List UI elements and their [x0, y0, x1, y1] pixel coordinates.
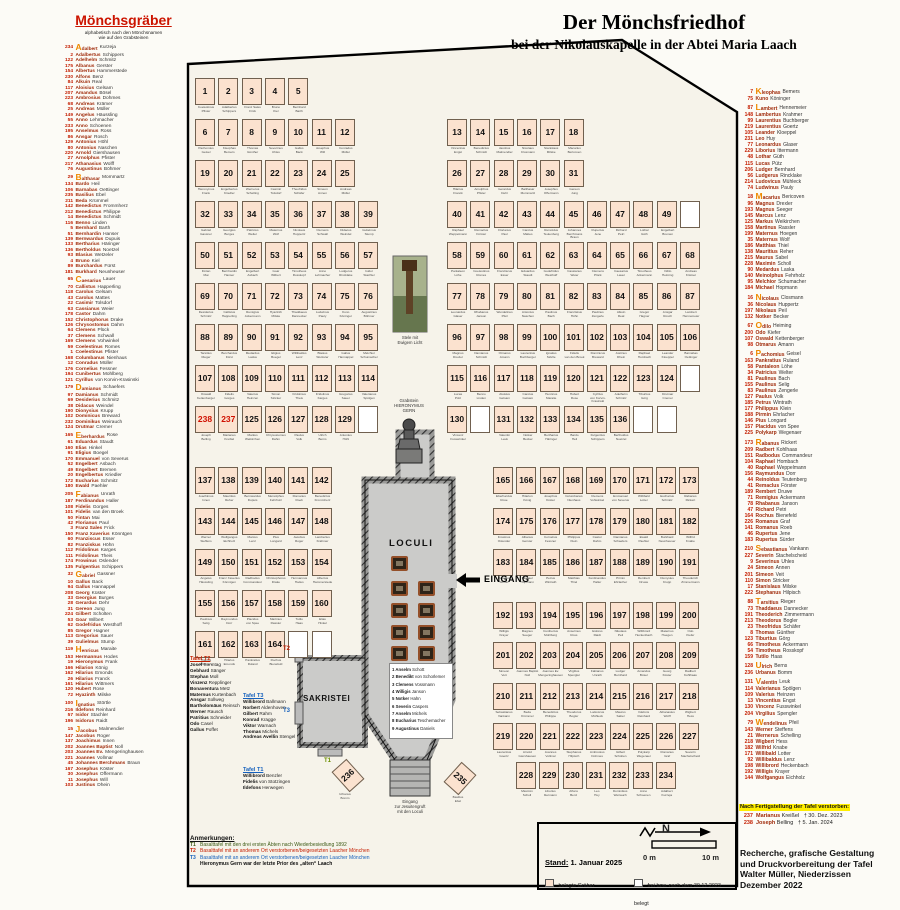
grave-number: 196	[60, 719, 73, 724]
plot-monk-name: VincenzFusswinkel	[445, 434, 471, 441]
plot-monk-name: GeorgiusBurges	[216, 229, 242, 236]
plot-number: 84	[611, 284, 629, 309]
plot-monk-name: MagnusSeeger	[514, 630, 540, 637]
sakristei-label: SAKRISTEI	[303, 694, 350, 703]
post-completion-entry: 237Marianus Kreißel † 30. Dez. 2023	[739, 813, 899, 820]
plot-monk-name: JosephusWill	[310, 147, 336, 154]
grave-plot-207: 207AmandusBösel	[633, 642, 653, 669]
plot-monk-name: JosephBelling	[193, 434, 219, 441]
plot-monk-name: Franz XaveriusKönntgen	[216, 577, 242, 584]
grave-plot-133: 133BerthariusHäringer	[540, 406, 560, 433]
plot-monk-name: MauritiusReher	[216, 495, 242, 502]
grave-number: 65	[60, 277, 73, 284]
plot-monk-name: CarolusMattes	[515, 229, 541, 236]
loculus-3	[418, 581, 435, 596]
grave-plot-97: 97DamianusSchmidt	[470, 324, 490, 351]
grave-plot-174: 174FrowinusOslender	[493, 508, 513, 535]
plot-number: 110	[266, 366, 284, 391]
plot-number: 44	[541, 202, 559, 227]
plot-number: 116	[471, 366, 489, 391]
plot-monk-name: Emmanuelvon Severus	[608, 495, 634, 502]
plot-number: 206	[611, 643, 629, 668]
monk-surname: Neunheuser	[99, 270, 125, 275]
grave-plot-187: 187FerdinandusHaller	[586, 549, 606, 576]
plot-monk-name: RomanusGraf	[654, 751, 680, 758]
grave-plot-222: 222StephanusHilpisch	[563, 723, 583, 750]
loculus-4	[391, 603, 408, 618]
plot-number: 18	[565, 120, 583, 145]
grave-plot-26: 26HilariusFranck	[447, 160, 467, 187]
plot-monk-name: LambertHennemeier	[678, 311, 704, 318]
plot-monk-name: GregorHagner	[631, 311, 657, 318]
grave-plot-168: 168ColumbanusNienhaus	[563, 467, 583, 494]
plot-number: 162	[219, 632, 237, 657]
grave-plot-28: 28GerardusDehr	[494, 160, 514, 187]
plot-monk-name: Joannes BaptistNoll	[514, 670, 540, 677]
plot-number: 159	[289, 591, 307, 616]
plot-monk-name: Joannes Ev.Mengeringhausen	[538, 670, 564, 677]
plot-monk-name: LeanderKloeppel	[655, 352, 681, 359]
plot-monk-name: WernerSteffens	[193, 536, 219, 543]
page-title-block: Der Mönchsfriedhof bei der Nikolauskapel…	[415, 10, 893, 53]
plot-number: 47	[611, 202, 629, 227]
grave-plot-129: 129AntoniusHöhl	[335, 406, 355, 433]
plot-number: 181	[657, 509, 675, 534]
monk-surname: Kloeppel	[777, 130, 796, 136]
plot-number: 202	[517, 643, 535, 668]
plot-number: 195	[564, 603, 582, 628]
grave-plot-217: 217AthanasiusWolff	[656, 683, 676, 710]
plot-monk-name: FridolinusKarges	[310, 393, 336, 400]
plot-monk-name: AntoniusHöhl	[333, 434, 359, 441]
plot-number: 32	[196, 202, 214, 227]
plot-monk-name: EliasHinkel	[310, 618, 336, 625]
grave-number: 222	[739, 590, 753, 596]
plot-number: 111	[289, 366, 307, 391]
plot-number: 173	[680, 468, 698, 493]
plot-number: 218	[680, 684, 698, 709]
plot-monk-name: AugustinusBöhmer	[356, 311, 382, 318]
grave-plot-85: 85GregorHagner	[633, 283, 653, 310]
grave-plot-124: 124DrutmarCremer	[657, 365, 677, 392]
monk-surname: Schaefers	[103, 385, 125, 392]
grave-index-entry: 75KunoKöninger	[739, 96, 899, 102]
plot-monk-name: TutiloHaas	[286, 618, 312, 625]
grave-number: 159	[739, 654, 753, 660]
plot-number: 124	[658, 366, 676, 391]
plot-number: 154	[313, 550, 331, 575]
plot-number: 109	[243, 366, 261, 391]
plot-number: 15	[495, 120, 513, 145]
grave-plot-237: 237MarianusKreißel	[218, 406, 238, 433]
plot-monk-name: WilligisKrayer	[491, 630, 517, 637]
stele-caption: Stele mit Ewigem Licht	[388, 336, 432, 346]
grave-plot-69: 69DesideriusSchmitz	[195, 283, 215, 310]
grave-number: 128	[739, 663, 753, 670]
grave-index-entry: 159TutiloHaas	[739, 654, 899, 660]
plot-number: 78	[471, 284, 489, 309]
plot-monk-name: TimotheusRosskopf	[286, 270, 312, 277]
grave-plot-51: 51BernhardinHanser	[218, 242, 238, 269]
grave-number: 210	[739, 546, 753, 553]
plot-monk-name: FerdinandusHaller	[584, 577, 610, 584]
grave-plot-83: 83PaulinusZengerle	[587, 283, 607, 310]
plot-monk-name: MartinusRassler	[263, 618, 289, 625]
plot-monk-name: RadbertKohlhaas	[677, 670, 703, 677]
plot-number: 10	[289, 120, 307, 145]
plot-number: 35	[266, 202, 284, 227]
plot-monk-name: DidacusWeindel	[333, 229, 359, 236]
monk-surname: Wegenaer	[779, 430, 802, 436]
plot-number: 81	[541, 284, 559, 309]
grave-number: 98	[739, 342, 753, 348]
plot-monk-name: GerardusDehr	[492, 188, 518, 195]
plot-monk-name: GilbertScholten	[608, 751, 634, 758]
plot-monk-name: FintanMai	[193, 270, 219, 277]
grave-plot-101: 101Fidelisvan den Broek	[564, 324, 584, 351]
grave-number: 103	[60, 783, 73, 788]
grave-number: 225	[739, 430, 753, 436]
grave-index-entry: 225PolykarpWegenaer	[739, 430, 899, 436]
plot-number: 13	[448, 120, 466, 145]
plot-number: 143	[196, 509, 214, 534]
plot-monk-name: CaesariusLauer	[608, 270, 634, 277]
plot-number: 91	[266, 325, 284, 350]
plot-number: 25	[336, 161, 354, 186]
grave-plot-230: 230AlfonsBenz	[563, 762, 583, 789]
plot-number: 16	[518, 120, 536, 145]
plot-monk-name: LaurentiusGoertz	[491, 751, 517, 758]
plot-monk-name: DominikusWeirauch	[607, 790, 633, 797]
grave-plot-179: 179DamianusSchaefers	[610, 508, 630, 535]
grave-plot-159: 159TutiloHaas	[288, 590, 308, 617]
plot-monk-name: SeverinusUhles	[263, 147, 289, 154]
grave-plot-100: 100IgnatiusStörtle	[540, 324, 560, 351]
plot-monk-name: PolykarpWegenaer	[631, 751, 657, 758]
eingang-arrow-icon	[456, 573, 480, 587]
grave-plot-57: 57IsidorStachler	[358, 242, 378, 269]
plot-monk-name: ThomasGünther	[240, 147, 266, 154]
plot-number: 11	[313, 120, 331, 145]
plot-number: 40	[448, 202, 466, 227]
grave-number: 180	[60, 484, 73, 489]
grave-plot-56: 56LudgerusRincklake	[335, 242, 355, 269]
plot-monk-name: TimotheusAckermann	[631, 270, 657, 277]
plot-monk-name: WigbertHess	[677, 711, 703, 718]
plot-number: 26	[448, 161, 466, 186]
loculus-5	[418, 603, 435, 618]
grave-plot-214: 214LudovicusMühleck	[586, 683, 606, 710]
grave-number: 76	[60, 167, 73, 172]
plot-monk-name: GereonJung	[562, 188, 588, 195]
plot-monk-name: PantaleonLöhe	[445, 270, 471, 277]
plot-monk-name: PaulusVolk	[286, 434, 312, 441]
grave-plot-84: 84AlkuinReal	[610, 283, 630, 310]
grave-plot-79: 79WendelinusPfeil	[494, 283, 514, 310]
plot-monk-name: EngelbertAsbach	[240, 270, 266, 277]
grave-number: 119	[60, 647, 73, 654]
plot-monk-name: BerthariusHäringer	[538, 434, 564, 441]
monk-surname: Dhein	[97, 783, 110, 788]
plot-monk-name: AlbertusHammerstede	[310, 577, 336, 584]
grave-index-entry: 184MichaelHopmann	[739, 285, 899, 291]
plot-number: 183	[494, 550, 512, 575]
plot-monk-name: MaternusWolf	[263, 229, 289, 236]
plot-monk-name: Placidusvon Spee	[240, 618, 266, 625]
index-entries-k-w: 7KleophasBemers75KunoKöninger87LambertHe…	[739, 89, 899, 781]
grave-plot-163: 163PankratiusRuland	[242, 631, 262, 658]
plot-number: 207	[634, 643, 652, 668]
loculus-9	[418, 646, 435, 661]
plot-monk-name: JosephusKöster	[538, 495, 564, 502]
post-completion-heading: Nach Fertigstellung der Tafel verstorben…	[739, 804, 850, 811]
monk-surname: Böhmer	[104, 167, 121, 172]
plot-monk-name: RaphaelWeppelmann	[445, 229, 471, 236]
grave-index-entry: 131ValentinLeuk	[739, 679, 899, 686]
plot-number: 98	[495, 325, 513, 350]
empty-plot	[657, 406, 677, 433]
plot-monk-name: EngelbertusKriedler	[216, 188, 242, 195]
plot-number: 96	[448, 325, 466, 350]
plot-monk-name: WernerusSchelling	[240, 188, 266, 195]
plot-number: 230	[564, 763, 582, 788]
grave-plot-128: 128UlrichBerns	[312, 406, 332, 433]
plot-monk-name: KunoKöninger	[333, 311, 359, 318]
plot-number: 21	[243, 161, 261, 186]
plot-monk-name: UrbanusBomm	[330, 793, 360, 800]
hieronymus-gern-monument	[396, 419, 422, 463]
plot-number: 5	[289, 79, 307, 104]
plot-number: 117	[495, 366, 513, 391]
grave-number: 7	[739, 89, 753, 96]
grave-index-entry: 210SebastianusVankann	[739, 546, 899, 553]
grave-plot-65: 65CaesariusLauer	[610, 242, 630, 269]
plot-monk-name: AlkuinReal	[608, 311, 634, 318]
loculus-6	[391, 625, 408, 640]
grave-index-entry: 65CaesariusLauer	[60, 277, 187, 284]
grave-plot-87: 87LambertHennemeier	[680, 283, 700, 310]
plot-monk-name: BlasiusWetzeler	[310, 352, 336, 359]
plot-number: 134	[565, 407, 583, 432]
grave-plot-108: 108FidelisGorges	[218, 365, 238, 392]
monk-surname: Sürder	[779, 537, 794, 543]
grave-plot-126: 126ChrysostomusDahm	[265, 406, 285, 433]
grave-plot-19: 19HieronymusFrank	[195, 160, 215, 187]
grave-plot-212: 212BenedictusPhilippe	[540, 683, 560, 710]
plot-number: 160	[313, 591, 331, 616]
grave-plot-64: 64ClemensPlück	[587, 242, 607, 269]
grave-plot-224: 224GilbertScholten	[610, 723, 630, 750]
plot-monk-name: FlorianusPaul	[492, 229, 518, 236]
grave-index-entry: 16NicolausClosmann	[739, 295, 899, 302]
grave-plot-89: 89BurchardusFürst	[218, 324, 238, 351]
grave-plot-198: 198WillibrordHeckenbach	[633, 602, 653, 629]
plot-number: 226	[657, 724, 675, 749]
grave-number: 179	[60, 385, 73, 392]
plot-number: 52	[243, 243, 261, 268]
plot-monk-name: AthanasiusWolff	[654, 711, 680, 718]
plot-number: 136	[611, 407, 629, 432]
plot-monk-name: AnselmusRoss	[561, 630, 587, 637]
plot-monk-name: PirminEhrlacher	[608, 577, 634, 584]
plot-monk-name: WillibaldusLenz	[286, 352, 312, 359]
grave-plot-104: 104RaphaelHombach	[633, 324, 653, 351]
plot-monk-name: FulgentiusSchippers	[585, 434, 611, 441]
plot-number: 56	[336, 243, 354, 268]
grave-plot-33: 33GeorgiusBurges	[218, 201, 238, 228]
grave-plot-236: 236	[332, 759, 365, 792]
grave-plot-35: 35MaternusWolf	[265, 201, 285, 228]
occupied-label: belegte Gräber	[558, 883, 594, 889]
plot-number: 106	[681, 325, 699, 350]
plot-number: 64	[588, 243, 606, 268]
loculi-legend-entry: 9 Augustinus Daniels	[392, 725, 450, 732]
plot-monk-name: BasiliusEbel	[443, 796, 473, 803]
plot-monk-name: FridolinusTheis	[286, 393, 312, 400]
plot-monk-name: LucasPütz	[445, 393, 471, 400]
grave-plot-134: 134BardoHeil	[564, 406, 584, 433]
loculi-legend: 1 Anselm Schott2 Benedikt von Schorlemer…	[389, 663, 453, 739]
grave-plot-74: 74LudwinusPauly	[312, 283, 332, 310]
plot-monk-name: CarolusGelsam	[515, 393, 541, 400]
plot-number: 66	[634, 243, 652, 268]
grave-plot-156: 156RaymundusDorr	[218, 590, 238, 617]
plot-number: 227	[680, 724, 698, 749]
grave-index-entry: 72HyazinthMilske	[60, 693, 187, 698]
plot-number: 57	[359, 243, 377, 268]
grave-plot-199: 199MaternusHoegen	[656, 602, 676, 629]
grave-plot-166: 166HilarionKönig	[516, 467, 536, 494]
grave-plot-227: 227SeverinStachelscheid	[679, 723, 699, 750]
plot-number: 201	[494, 643, 512, 668]
plot-monk-name: CassianusWeier	[562, 270, 588, 277]
grave-plot-96: 96MagnusDrexler	[447, 324, 467, 351]
grave-index-entry: 88TarsitiusRieger	[739, 599, 899, 606]
grave-number: 204	[739, 711, 753, 717]
grave-plot-209: 209RadbertKohlhaas	[679, 642, 699, 669]
loculus-8	[391, 646, 408, 661]
plot-number: 1	[196, 79, 214, 104]
plot-monk-name: CasimirTolsdorf	[263, 188, 289, 195]
grave-plot-17: 17StanislausMilske	[540, 119, 560, 146]
grave-plot-132: 132NotkerBecker	[517, 406, 537, 433]
plot-number: 67	[658, 243, 676, 268]
monk-surname: Cremer	[96, 425, 112, 430]
grave-plot-200: 200OdoKiefer	[679, 602, 699, 629]
plot-monk-name: AdalbertKurzeja	[654, 790, 680, 797]
plot-monk-name: MarcusLenz	[240, 536, 266, 543]
monk-surname: Eichholz	[786, 775, 805, 781]
grave-index-entry: 67OdiloHeiming	[739, 323, 899, 330]
credits-line: Recherche, grafische Gestaltung	[740, 848, 900, 859]
hieronymus-gern-caption: Grabstein HIERONYMUS GERN	[383, 398, 435, 413]
plot-number: 156	[219, 591, 237, 616]
plot-monk-name: MatthiasThiel	[561, 577, 587, 584]
monk-surname: Bomm	[778, 670, 792, 676]
grave-plot-116: 116BennoLinden	[470, 365, 490, 392]
plot-number: 237	[219, 407, 237, 432]
plot-monk-name: ClemensSchwall	[310, 229, 336, 236]
plot-number: 211	[517, 684, 535, 709]
plot-monk-name: FranziskusHöhn	[562, 311, 588, 318]
monk-surname: Milske	[98, 693, 112, 698]
plot-monk-name: AnnoSchoenen	[631, 790, 657, 797]
monk-surname: Mommartz	[102, 175, 125, 182]
plot-number: 135	[588, 407, 606, 432]
plot-number: 170	[611, 468, 629, 493]
grave-number: 184	[739, 285, 753, 291]
plot-number: 74	[313, 284, 331, 309]
plot-number: 43	[518, 202, 536, 227]
plot-number: 185	[541, 550, 559, 575]
free-label: frei bzw. nach dem 30.12.2023 belegt	[634, 883, 721, 907]
grave-plot-177: 177PhilippusKlein	[563, 508, 583, 535]
plot-monk-name: LudgerusRincklake	[333, 270, 359, 277]
grave-index-entry: 234AdalbertKurzeja	[60, 45, 187, 52]
plot-monk-name: RhabanusJanson	[468, 311, 494, 318]
grave-number: 234	[60, 45, 73, 52]
grave-plot-173: 173RabanusRickert	[679, 467, 699, 494]
plot-number: 87	[681, 284, 699, 309]
plot-number: 120	[565, 366, 583, 391]
monk-first-name: Macarius	[756, 194, 781, 201]
plot-monk-name: RichardPetri	[608, 229, 634, 236]
tafel-name: Gallus Poffet	[190, 727, 240, 733]
grave-plot-235: 235	[444, 762, 477, 795]
grave-index-right-column: 7KleophasBemers75KunoKöninger87LambertHe…	[739, 84, 899, 781]
plot-monk-name: ValerianusSpölgen	[356, 393, 382, 400]
plot-monk-name: MaurusSabel	[608, 711, 634, 718]
grave-plot-120: 120HubertRose	[564, 365, 584, 392]
grave-number: 6	[739, 351, 753, 358]
monk-first-name: Rabanus	[756, 440, 780, 447]
plot-monk-name: SebastianusVankann	[491, 711, 517, 718]
grave-plot-155: 155PaulinusSelig	[195, 590, 215, 617]
plot-monk-name: LudovicusMühleck	[584, 711, 610, 718]
grave-index-entry: 15JacobusMalmendier	[60, 727, 187, 734]
grave-plot-91: 91EligiusBoegel	[265, 324, 285, 351]
plot-number: 158	[266, 591, 284, 616]
plot-number: 229	[540, 763, 558, 788]
grave-plot-16: 16NicolausClosmann	[517, 119, 537, 146]
plot-monk-name: ValeriusHeinzen	[240, 393, 266, 400]
plot-monk-name: ConradusMüller	[333, 147, 359, 154]
grave-index-entry: 236UrbanusBomm	[739, 670, 899, 676]
grave-plot-11: 11JosephusWill	[312, 119, 332, 146]
grave-plot-117: 117AloisiusGelsam	[494, 365, 514, 392]
monk-surname: Rosskopf	[783, 648, 804, 654]
credits-block: Recherche, grafische Gestaltung und Druc…	[740, 848, 900, 890]
grave-plot-181: 181BurkhardNeunheuser	[656, 508, 676, 535]
grave-plot-153: 153HermannusHodes	[288, 549, 308, 576]
grave-index-entry: 144WolfgangusEichholz	[739, 775, 899, 781]
plot-number: 147	[289, 509, 307, 534]
plot-number: 204	[564, 643, 582, 668]
grave-plot-2: 2AdalbertusSchippers	[218, 78, 238, 105]
plot-number: 62	[541, 243, 559, 268]
plot-number: 149	[196, 550, 214, 575]
grave-plot-111: 111FridolinusTheis	[288, 365, 308, 392]
grave-number: 131	[739, 679, 753, 686]
loculi-legend-entry: 3 Clemens Vossmann	[392, 681, 450, 688]
grave-number: 18	[739, 194, 753, 201]
plot-monk-name: DionysiusKrupp	[654, 577, 680, 584]
status-legend-box: Stand: 1. Januar 2025 belegte Gräber fre…	[537, 822, 737, 890]
grave-index-entry: 222StephanusHilpisch	[739, 590, 899, 596]
empty-plot	[470, 406, 490, 433]
plot-monk-name: UlrichBerns	[310, 434, 336, 441]
monk-surname: Hopmann	[776, 285, 798, 291]
